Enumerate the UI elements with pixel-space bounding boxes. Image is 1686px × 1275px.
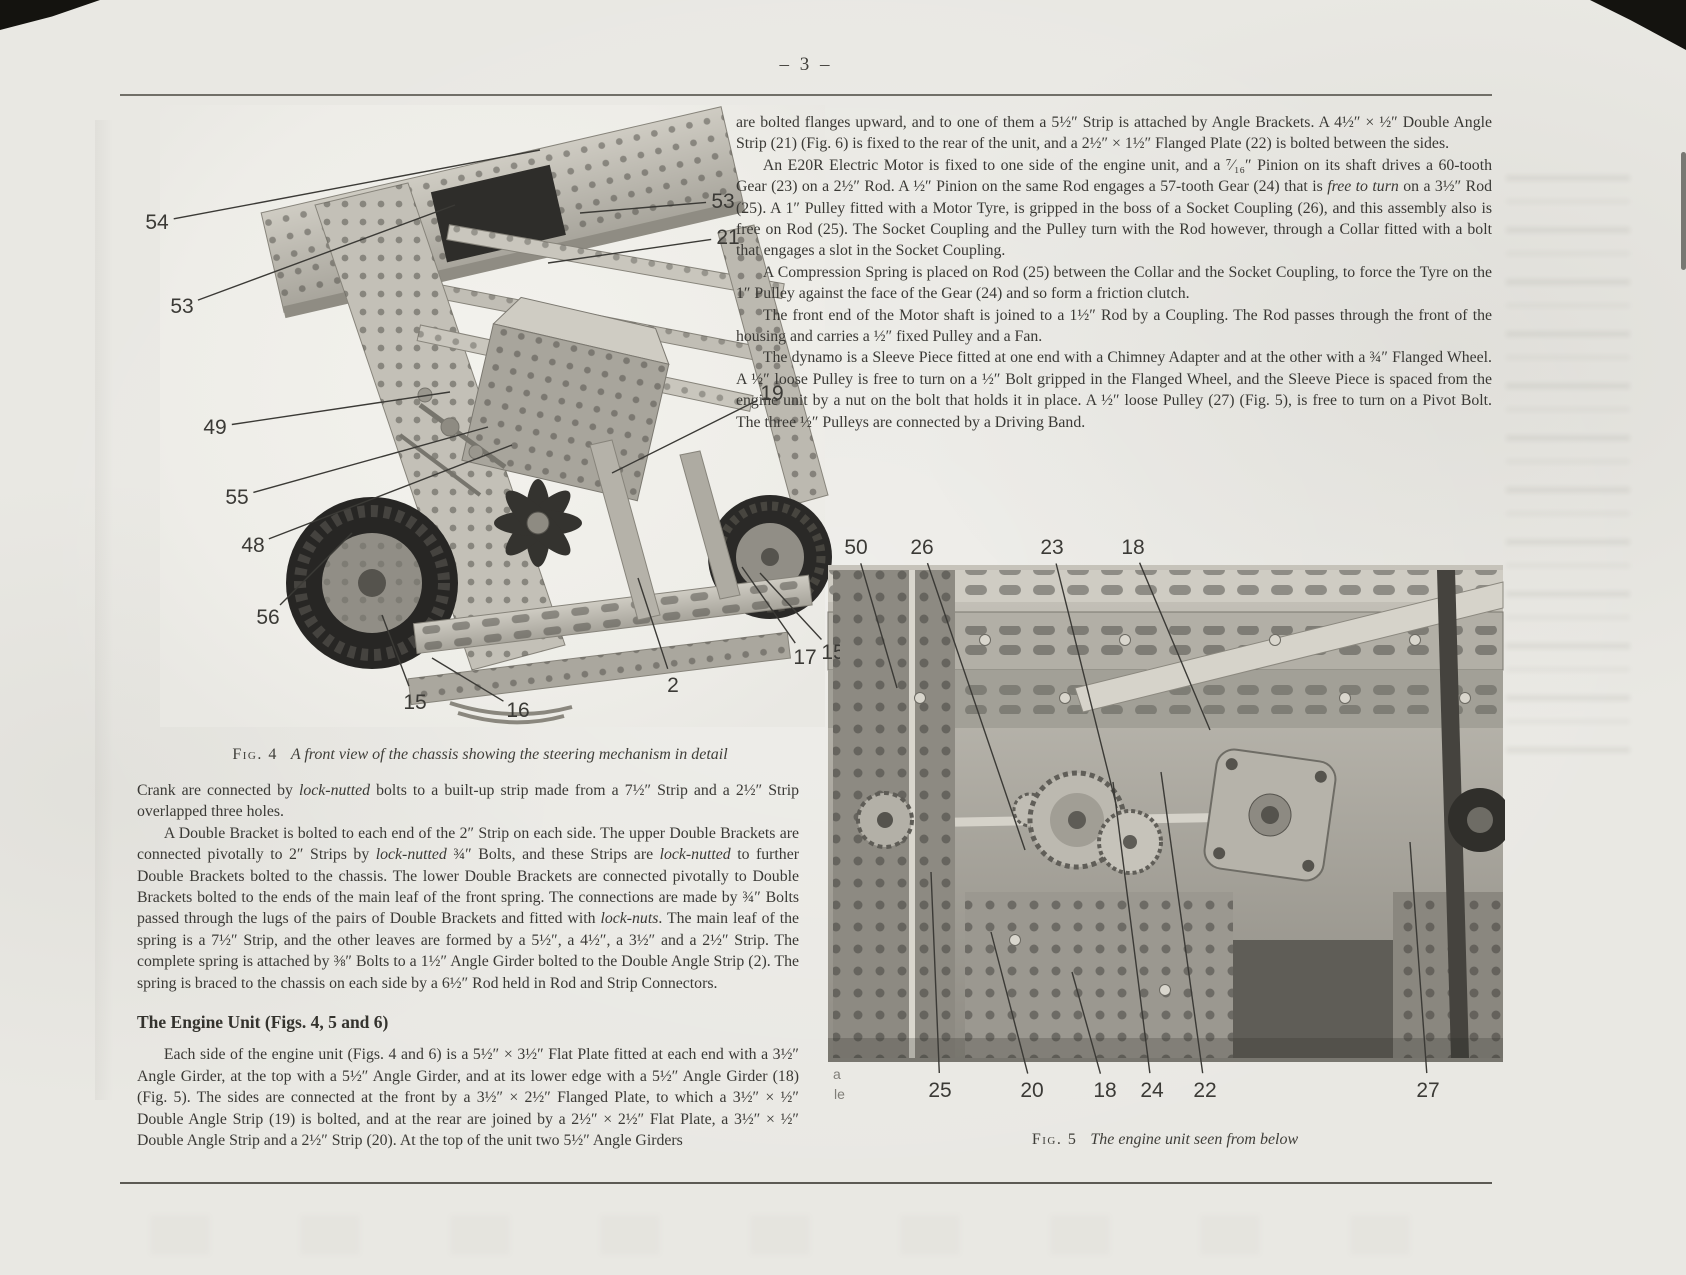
- callout-number: 16: [506, 699, 529, 722]
- scan-artifact-left-margin: [95, 120, 121, 1100]
- callout-line: [382, 615, 409, 686]
- callout-number: 17: [793, 646, 816, 669]
- paragraph: The front end of the Motor shaft is join…: [736, 305, 1492, 348]
- paragraph: An E20R Electric Motor is fixed to one s…: [736, 155, 1492, 262]
- figure-4-caption: Fig. 4A front view of the chassis showin…: [120, 746, 840, 764]
- callout-line: [742, 567, 795, 643]
- figure-5-label: Fig. 5: [1032, 1131, 1078, 1148]
- callout-line: [580, 202, 706, 213]
- engine-unit-heading: The Engine Unit (Figs. 4, 5 and 6): [137, 1012, 799, 1033]
- callout-line: [253, 427, 488, 492]
- callout-line: [280, 533, 352, 605]
- callout-number: 56: [256, 606, 279, 629]
- callout-number: 15: [403, 691, 426, 714]
- figure-5-photo: 50262318252018242227: [825, 520, 1505, 1110]
- callout-line: [548, 239, 711, 263]
- callout-line: [931, 872, 939, 1073]
- callout-line: [174, 150, 540, 219]
- callout-number: 53: [170, 295, 193, 318]
- callout-line: [991, 932, 1028, 1074]
- callout-line: [638, 578, 668, 669]
- callout-number: 22: [1193, 1079, 1216, 1102]
- paragraph: The dynamo is a Sleeve Piece fitted at o…: [736, 347, 1492, 433]
- callout-line: [1140, 563, 1210, 730]
- callout-line: [861, 563, 897, 688]
- callout-line: [1056, 563, 1117, 808]
- callout-line: [432, 658, 503, 701]
- callout-number: 18: [1121, 536, 1144, 559]
- right-column: are bolted flanges upward, and to one of…: [736, 112, 1492, 433]
- callout-number: 26: [910, 536, 933, 559]
- callout-line: [927, 563, 1025, 850]
- figure-4-photo: 545349554856532119151721615: [120, 105, 840, 740]
- callout-number: 55: [225, 486, 248, 509]
- page-number: – 3 –: [120, 54, 1492, 76]
- paragraph: A Double Bracket is bolted to each end o…: [137, 823, 799, 994]
- callout-number: 19: [760, 382, 783, 405]
- callout-number: 24: [1140, 1079, 1164, 1102]
- scan-artifact-corner-top-left: [0, 0, 100, 30]
- callout-number: 50: [844, 536, 867, 559]
- figure-4-caption-text: A front view of the chassis showing the …: [291, 746, 728, 763]
- figure-4-label: Fig. 4: [232, 746, 278, 763]
- paragraph: are bolted flanges upward, and to one of…: [736, 112, 1492, 155]
- callout-line: [1072, 972, 1100, 1074]
- scan-artifact-bottom-margin: [150, 1215, 1450, 1255]
- callout-number: 20: [1020, 1079, 1043, 1102]
- callout-number: 25: [928, 1079, 951, 1102]
- scan-artifact-corner-top-right: [1590, 0, 1686, 50]
- footer-rule: [120, 1182, 1492, 1184]
- callout-number: 21: [716, 226, 739, 249]
- figure-4-callouts: 545349554856532119151721615: [120, 105, 840, 740]
- callout-line: [612, 401, 757, 473]
- figure-5-callouts: 50262318252018242227: [825, 520, 1505, 1110]
- paragraph: Crank are connected by lock-nutted bolts…: [137, 780, 799, 823]
- callout-number: 54: [145, 211, 169, 234]
- callout-number: 48: [241, 534, 264, 557]
- callout-number: 27: [1416, 1079, 1439, 1102]
- callout-number: 53: [711, 190, 734, 213]
- callout-number: 23: [1040, 536, 1063, 559]
- callout-number: 49: [203, 416, 226, 439]
- callout-line: [1410, 842, 1427, 1073]
- callout-line: [198, 205, 455, 300]
- figure-5-caption: Fig. 5The engine unit seen from below: [825, 1131, 1505, 1149]
- scan-artifact-right-margin-bleedthrough: [1506, 175, 1630, 765]
- callout-line: [1161, 772, 1203, 1073]
- figure-5-caption-text: The engine unit seen from below: [1090, 1131, 1298, 1148]
- callout-number: 2: [667, 674, 679, 697]
- callout-line: [232, 392, 450, 424]
- scan-artifact-right-edge: [1681, 152, 1686, 270]
- paragraph: A Compression Spring is placed on Rod (2…: [736, 262, 1492, 305]
- header-rule: [120, 94, 1492, 96]
- paragraph: Each side of the engine unit (Figs. 4 an…: [137, 1044, 799, 1151]
- left-column: Crank are connected by lock-nutted bolts…: [137, 780, 799, 1152]
- callout-line: [269, 445, 512, 539]
- callout-line: [1113, 782, 1150, 1073]
- callout-number: 18: [1093, 1079, 1116, 1102]
